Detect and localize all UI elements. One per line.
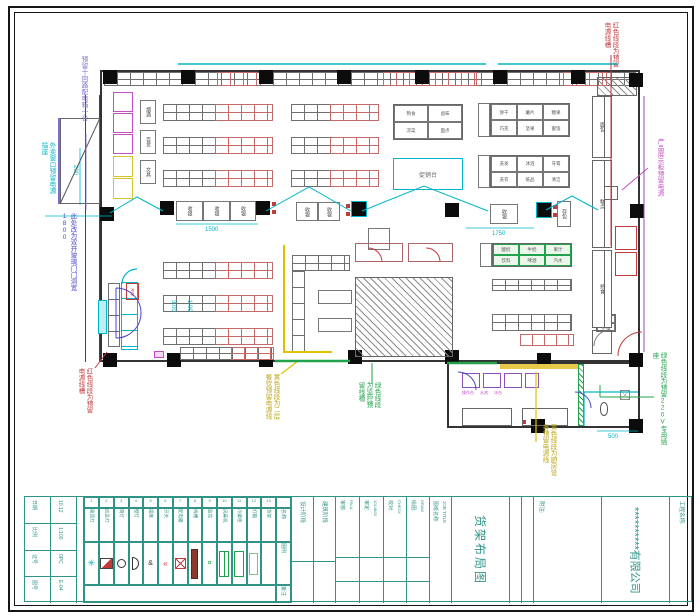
locker-label: 存包 xyxy=(561,209,567,219)
info-label: 证号 xyxy=(31,554,38,564)
legend-name: 风幕机 xyxy=(217,508,232,542)
dimension: 200 xyxy=(72,165,78,175)
gondola-shelf xyxy=(291,104,379,121)
table-cell: 纸品 xyxy=(517,172,543,188)
table-cell: 卤味 xyxy=(428,105,462,122)
legend-no: 11 xyxy=(232,497,247,508)
table-end-cap xyxy=(478,155,490,188)
checkout-label: 收银 xyxy=(501,209,507,219)
shelf-stack xyxy=(108,283,120,347)
locker-box: 存包 xyxy=(557,201,571,227)
bakery-counter: 糕点 xyxy=(592,160,612,248)
red-tick xyxy=(346,212,350,216)
column xyxy=(103,353,117,367)
table-cell: 洗衣 xyxy=(491,172,517,188)
column xyxy=(352,202,366,216)
display-case xyxy=(615,226,637,250)
magenta-fixture xyxy=(154,351,164,358)
legend-symbol-lightbox-icon xyxy=(247,542,262,585)
info-value: 1:100 xyxy=(57,527,63,540)
low-shelf xyxy=(492,279,572,291)
checkout-counter: 收银 xyxy=(296,202,318,221)
column xyxy=(337,70,351,84)
audit-column: 绘图: DRAW xyxy=(406,497,429,603)
drawing-name-label: 图纸名称: xyxy=(432,501,439,522)
counter xyxy=(292,255,350,271)
freezer-small: 冰柜 xyxy=(126,283,139,300)
table-cell: 汽水 xyxy=(545,255,571,266)
work-table xyxy=(318,318,352,332)
field-label: 审核: xyxy=(339,500,346,511)
legend-name: 吸顶灯 xyxy=(84,508,99,542)
table-end-cap xyxy=(480,243,492,267)
field-value: PAUL xyxy=(349,500,354,510)
legend-notes-row xyxy=(84,585,276,603)
dimension: 1500 xyxy=(205,227,218,233)
green-duct xyxy=(578,364,584,426)
legend-name: 壁灯 xyxy=(129,508,144,542)
ramp-edge xyxy=(58,118,60,204)
cold-room-vestibule xyxy=(408,243,453,262)
legend-symbol-ceiling-lamp-icon: ✳ xyxy=(84,542,99,585)
work-table xyxy=(318,290,352,304)
checkout-counter: 收银 xyxy=(203,201,230,221)
field-label: 审定: xyxy=(363,500,370,511)
promo-label: 促销台 xyxy=(419,170,437,179)
column xyxy=(259,70,273,84)
legend-name: 配电箱 xyxy=(173,508,188,542)
legend-table: 1 2 3 4 5 6 7 8 9 10 11 12 13 吸顶灯 应急灯 筒灯… xyxy=(83,497,291,603)
column xyxy=(445,203,459,217)
product-table: 饼干薯片糖果 巧克坚果蜜饯 xyxy=(490,103,570,137)
column xyxy=(160,201,174,215)
spacer-column xyxy=(509,497,521,603)
dimension: 3.00 xyxy=(170,300,176,312)
gondola-shelf xyxy=(291,137,379,154)
legend-no: 13 xyxy=(261,497,276,508)
gondola-shelf xyxy=(163,137,273,154)
bakery-counter: 面包 xyxy=(592,96,612,158)
audit-column: 校对: CHECK xyxy=(383,497,406,603)
display-cabinet xyxy=(604,186,618,200)
dimension: 1750 xyxy=(492,231,505,237)
gondola-red xyxy=(215,262,273,279)
legend-no: 4 xyxy=(129,497,144,508)
table-cell: 酸奶 xyxy=(493,244,519,255)
gondola-red xyxy=(215,137,273,154)
kitchen-fixture xyxy=(525,373,539,388)
column xyxy=(415,70,429,84)
column xyxy=(167,353,181,367)
wall-shelf-red xyxy=(231,347,274,360)
project-cell: 工程名称: xyxy=(669,497,693,603)
legend-name: 开关 xyxy=(158,508,173,542)
legend-no: 6 xyxy=(158,497,173,508)
legend-no: 1 xyxy=(84,497,99,508)
legend-name: 筒灯 xyxy=(114,508,129,542)
annotation: 红色线段为预留电源线槽 xyxy=(75,368,92,416)
legend-symbol-wall-lamp-icon xyxy=(129,542,144,585)
freezer-box xyxy=(113,134,133,154)
legend-name: 线槽 xyxy=(188,508,203,542)
legend-no: 7 xyxy=(173,497,188,508)
red-tick xyxy=(272,202,276,206)
table-cell: 清洁 xyxy=(543,172,569,188)
counter-label: 熟食 xyxy=(599,284,605,294)
gondola-red xyxy=(330,170,379,187)
legend-symbol-distribution-box-icon xyxy=(173,542,188,585)
column xyxy=(256,201,270,215)
red-shelf xyxy=(520,334,574,346)
stage-column: 建筑阶段 xyxy=(313,497,335,603)
annotation: 黄色线段为厨房设备预留电源线 xyxy=(520,424,556,476)
column xyxy=(181,70,195,84)
field-value: CHECK xyxy=(397,500,402,514)
spacer-column xyxy=(521,497,533,603)
annotation: 预留十回路配电箱一台 xyxy=(79,56,87,134)
legend-no: 10 xyxy=(217,497,232,508)
gondola-red xyxy=(330,137,379,154)
table-cell: 坚果 xyxy=(517,120,543,136)
info-value: E-04 xyxy=(57,580,63,591)
project-label: 工程名称: xyxy=(678,501,686,525)
gondola-shelf xyxy=(163,328,273,345)
freezer-label: 冰柜 xyxy=(130,288,136,296)
legend-corner xyxy=(276,497,291,508)
fixture-label: 冰台 xyxy=(494,390,502,396)
checkout-counter: 收银 xyxy=(318,202,340,221)
legend-symbol-air-curtain-icon xyxy=(217,542,232,585)
checkout-counter: 收银 xyxy=(176,201,203,221)
product-table: 洗发沐浴牙膏 洗衣纸品清洁 xyxy=(490,155,570,188)
fixture-label: 操作台 xyxy=(462,390,474,396)
checkout-label: 收银 xyxy=(187,206,193,216)
legend-symbol-socket-icon: & xyxy=(143,542,158,585)
notes-label: 附注: xyxy=(538,501,546,514)
freezer-box xyxy=(113,92,133,112)
job-title-label: JOB TITLE xyxy=(442,501,447,523)
cold-room-vestibule xyxy=(355,243,403,262)
table-cell: 饮料 xyxy=(493,255,519,266)
legend-symbol-empty xyxy=(261,542,276,585)
legend-name: 插座 xyxy=(143,508,158,542)
gondola-red xyxy=(215,104,273,121)
table-end-cap xyxy=(478,103,490,137)
checkout-label: 收银 xyxy=(326,207,332,217)
zone-label: 百货 xyxy=(145,137,151,147)
checkout-counter: 收银 xyxy=(490,204,518,224)
gondola-shelf xyxy=(291,170,379,187)
cold-room-hatch xyxy=(355,277,453,357)
table-cell: 洗发 xyxy=(491,156,517,172)
title-block: 日期 10.12 比例 1:100 证号 0PC 图号 E-04 1 2 3 4… xyxy=(24,496,692,602)
dimension: 1.00 xyxy=(186,300,192,312)
legend-row-header: 图例 xyxy=(276,542,291,585)
annotation: 外卖窗口预留电源插座 xyxy=(37,142,55,200)
table-cell: 饼干 xyxy=(491,104,517,120)
gondola-shelf xyxy=(163,104,273,121)
product-table: 熟食卤味 凉菜面点 xyxy=(393,104,463,140)
info-grid: 日期 10.12 比例 1:100 证号 0PC 图号 E-04 xyxy=(25,497,76,603)
counter-vertical xyxy=(292,271,305,353)
annotation: 黄色线段为二层餐饮预留电源线 xyxy=(243,374,279,422)
dairy-table: 酸奶牛奶果汁 饮料啤酒汽水 xyxy=(492,243,572,267)
stage-label: 建筑阶段 xyxy=(321,501,329,523)
legend-row-header: 名称 xyxy=(276,508,291,542)
annotation: 红色线段为预留电源线槽 xyxy=(601,22,618,68)
gondola-red xyxy=(215,295,273,312)
legend-row-header: 备注 xyxy=(276,585,291,603)
annotation: 此处改为双开玻璃门门洞宽1800 xyxy=(58,213,76,301)
table-cell: 沐浴 xyxy=(517,156,543,172)
checkout-label: 收银 xyxy=(240,206,246,216)
audit-column: 审核: PAUL xyxy=(335,497,359,603)
cooler-box xyxy=(113,178,133,199)
notes-cell: 附注: xyxy=(533,497,601,603)
table-cell: 牛奶 xyxy=(519,244,545,255)
legend-no: 8 xyxy=(188,497,203,508)
audit-column: 审定: 1014B03 xyxy=(359,497,383,603)
column xyxy=(493,70,507,84)
legend-name: 灯箱 xyxy=(247,508,262,542)
cooler-box xyxy=(113,156,133,177)
legend-name: 监控 xyxy=(202,508,217,542)
gondola-shelf xyxy=(163,295,273,312)
red-tick xyxy=(346,204,350,208)
stage-column: 设计阶段 xyxy=(291,497,313,603)
gondola-shelf xyxy=(163,262,273,279)
annotation: 产品展示柜预留电源 xyxy=(645,138,663,198)
legend-name: 应急灯 xyxy=(99,508,114,542)
column xyxy=(629,419,643,433)
legend-no: 2 xyxy=(99,497,114,508)
column xyxy=(630,204,644,218)
legend-name: 冷藏柜 xyxy=(232,508,247,542)
annotation: 绿色线段为预留220V专用插座 xyxy=(654,352,666,448)
dimension: 500 xyxy=(608,434,618,440)
legend-symbol-downlight-icon xyxy=(114,542,129,585)
zone-label-box: 百货 xyxy=(140,130,156,154)
zone-label-box: 烟酒 xyxy=(140,100,156,124)
info-value: 10.12 xyxy=(57,500,63,513)
kitchen-power-band xyxy=(500,364,578,369)
table-cell: 凉菜 xyxy=(394,122,428,139)
field-label: 校对: xyxy=(387,500,394,511)
checkout-label: 收银 xyxy=(214,206,220,216)
wall-shelf-red xyxy=(217,72,257,86)
legend-symbol-emergency-lamp-icon xyxy=(99,542,114,585)
zone-label: 烟酒 xyxy=(145,107,151,117)
stage-label: 设计阶段 xyxy=(299,501,307,523)
gondola-red xyxy=(215,328,273,345)
field-label: 绘图: xyxy=(410,500,417,511)
info-label: 比例 xyxy=(31,527,38,537)
legend-no: 9 xyxy=(202,497,217,508)
table-cell: 牙膏 xyxy=(543,156,569,172)
table-cell: 蜜饯 xyxy=(543,120,569,136)
legend-symbol-switch-icon: « xyxy=(158,542,173,585)
column xyxy=(100,207,114,221)
column xyxy=(103,70,117,84)
promo-area: 促销台 xyxy=(393,158,463,190)
company-name: **********有限公司 xyxy=(628,507,644,594)
legend-symbol-cable-tray-icon xyxy=(188,542,203,585)
gondola-red xyxy=(330,104,379,121)
wall-shelf-red xyxy=(383,72,477,86)
table-cell: 面点 xyxy=(428,122,462,139)
company-cell: **********有限公司 xyxy=(601,497,669,603)
table-cell: 熟食 xyxy=(394,105,428,122)
field-value: 1014B03 xyxy=(373,500,378,516)
counter-label: 糕点 xyxy=(599,199,605,209)
info-value: 0PC xyxy=(57,554,63,564)
field-value: DRAW xyxy=(420,500,425,512)
table-cell: 糖果 xyxy=(543,104,569,120)
zone-label-box: 文具 xyxy=(140,160,156,184)
freezer-box xyxy=(113,113,133,133)
annotation: 绿色线段为监控预留线槽 xyxy=(362,382,380,414)
fixture-label: 水池 xyxy=(480,390,488,396)
room-counter xyxy=(462,408,512,426)
table-cell: 果汁 xyxy=(545,244,571,255)
kitchen-fixture xyxy=(483,373,501,388)
wall-shelf xyxy=(180,347,274,360)
legend-no: 5 xyxy=(143,497,158,508)
kitchen-fixture xyxy=(504,373,522,388)
spacer-column xyxy=(76,497,83,603)
checkout-counter: 收银 xyxy=(230,201,256,221)
gondola-shelf xyxy=(492,314,572,331)
deli-counter: 熟食 xyxy=(592,250,612,328)
legend-no: 3 xyxy=(114,497,129,508)
column xyxy=(537,203,551,217)
kitchen-fixture-labels: 操作台 水池 冰台 xyxy=(462,390,542,396)
floor-drain xyxy=(620,390,630,400)
cold-case xyxy=(98,300,107,334)
toilet-fixture xyxy=(600,402,608,416)
info-label: 图号 xyxy=(31,580,38,590)
column xyxy=(629,353,643,367)
column xyxy=(629,73,643,87)
display-case xyxy=(615,252,637,276)
drawing-name: 货架布局图 xyxy=(472,515,489,585)
info-label: 日期 xyxy=(31,500,38,510)
zone-label: 文具 xyxy=(145,167,151,177)
checkout-label: 收银 xyxy=(304,207,310,217)
table-cell: 巧克 xyxy=(491,120,517,136)
legend-no: 12 xyxy=(247,497,262,508)
legend-symbol-cooler-icon xyxy=(232,542,247,585)
legend-symbol-camera-icon: ¤ xyxy=(202,542,217,585)
gondola-shelf xyxy=(163,170,273,187)
column xyxy=(571,70,585,84)
drawing-name-label-column: 图纸名称: JOB TITLE xyxy=(429,497,451,603)
table-cell: 啤酒 xyxy=(519,255,545,266)
red-tick xyxy=(272,210,276,214)
counter-label: 面包 xyxy=(599,122,605,132)
legend-name: 货架 xyxy=(261,508,276,542)
gondola-red xyxy=(215,170,273,187)
drawing-name-cell: 货架布局图 xyxy=(451,497,509,603)
table-cell: 薯片 xyxy=(517,104,543,120)
counter-corner xyxy=(592,330,612,354)
kitchen-fixture xyxy=(462,373,480,388)
